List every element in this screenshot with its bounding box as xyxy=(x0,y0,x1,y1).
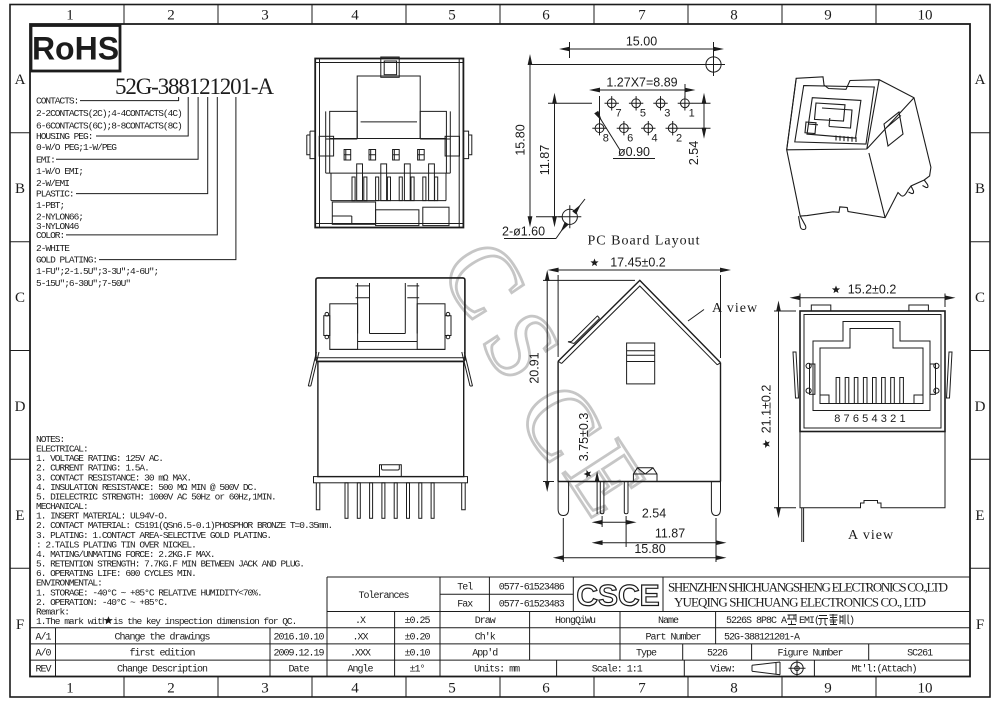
svg-text:52G-388121201-A: 52G-388121201-A xyxy=(724,632,800,643)
svg-text:ø0.90: ø0.90 xyxy=(618,145,650,159)
svg-text:App'd: App'd xyxy=(472,648,498,660)
svg-text:HongQiWu: HongQiWu xyxy=(555,615,596,627)
svg-text:A/1: A/1 xyxy=(35,632,51,644)
svg-text:52G-388121201-A: 52G-388121201-A xyxy=(115,74,274,99)
svg-text:COLOR:: COLOR: xyxy=(36,230,64,241)
svg-text:2: 2 xyxy=(676,133,682,145)
svg-text:3: 3 xyxy=(664,108,670,120)
svg-text:E: E xyxy=(975,508,984,524)
svg-text:Tolerances: Tolerances xyxy=(358,590,409,602)
svg-text:20.91: 20.91 xyxy=(528,352,542,383)
svg-text:0-W/O PEG;1-W/PEG: 0-W/O PEG;1-W/PEG xyxy=(36,142,117,153)
svg-text:15.80: 15.80 xyxy=(514,124,528,155)
svg-text:5226: 5226 xyxy=(707,649,728,660)
svg-text:5: 5 xyxy=(448,681,456,697)
svg-text:1-FU";2-1.5U";3-3U";4-6U";: 1-FU";2-1.5U";3-3U";4-6U"; xyxy=(36,266,158,277)
svg-text:3: 3 xyxy=(261,681,269,697)
svg-text:1: 1 xyxy=(689,108,695,120)
svg-text:9: 9 xyxy=(824,8,832,24)
svg-text:F: F xyxy=(16,617,24,633)
svg-text:B: B xyxy=(975,181,985,197)
svg-text:2009.12.19: 2009.12.19 xyxy=(273,649,324,660)
svg-text:8: 8 xyxy=(603,133,609,145)
svg-text:Ch'k: Ch'k xyxy=(475,631,496,643)
svg-text:7: 7 xyxy=(638,681,646,697)
svg-text:5-15U";6-30U";7-50U": 5-15U";6-30U";7-50U" xyxy=(36,278,130,289)
svg-text:Scale: 1:1: Scale: 1:1 xyxy=(592,664,643,676)
svg-text:10: 10 xyxy=(918,681,933,697)
svg-text:PC Board Layout: PC Board Layout xyxy=(588,234,701,249)
svg-text:87654321: 87654321 xyxy=(834,413,909,425)
svg-text:7: 7 xyxy=(638,8,646,24)
svg-text:Draw: Draw xyxy=(475,616,496,627)
svg-text:.X: .X xyxy=(355,616,366,627)
svg-text:SC261: SC261 xyxy=(907,649,933,660)
svg-text:1-PBT;: 1-PBT; xyxy=(36,200,64,211)
svg-text:1-W/O EMI;: 1-W/O EMI; xyxy=(36,166,83,177)
svg-text:C: C xyxy=(975,290,985,306)
svg-text:11.87: 11.87 xyxy=(655,527,685,541)
svg-text:6: 6 xyxy=(542,681,550,697)
svg-text:5226S 8P8C A: 5226S 8P8C A xyxy=(726,616,787,627)
svg-text:15.80: 15.80 xyxy=(634,542,665,556)
svg-text:6-6CONTACTS(6C);8-8CONTACTS(8C: 6-6CONTACTS(6C);8-8CONTACTS(8C) xyxy=(36,121,182,132)
svg-text:2016.10.10: 2016.10.10 xyxy=(273,633,324,644)
svg-text:is the key inspection dimensio: is the key inspection dimension for QC. xyxy=(113,616,296,627)
svg-text:5: 5 xyxy=(640,108,646,120)
svg-text:6: 6 xyxy=(542,8,550,24)
svg-text:A: A xyxy=(975,72,986,88)
svg-text:Type: Type xyxy=(636,649,657,660)
svg-text:PLASTIC:: PLASTIC: xyxy=(36,189,74,200)
svg-text:3: 3 xyxy=(261,8,269,24)
svg-text:7: 7 xyxy=(615,108,621,120)
svg-text:B: B xyxy=(15,181,25,197)
svg-text:HOUSING PEG:: HOUSING PEG: xyxy=(36,131,92,142)
svg-text:2-ø1.60: 2-ø1.60 xyxy=(502,225,545,239)
svg-text:2-WHITE: 2-WHITE xyxy=(36,243,70,254)
svg-text:21.1±0.2: 21.1±0.2 xyxy=(760,385,774,434)
svg-text:.XXX: .XXX xyxy=(350,649,371,660)
svg-text:4: 4 xyxy=(652,133,658,145)
svg-text:2: 2 xyxy=(167,8,175,24)
svg-text:YUEQING SHICHUANG ELECTRONICS: YUEQING SHICHUANG ELECTRONICS CO., LTD xyxy=(674,595,926,610)
svg-text:±0.10: ±0.10 xyxy=(404,649,430,660)
svg-text:EMI(: EMI( xyxy=(799,615,819,627)
svg-text:0577-61523486: 0577-61523486 xyxy=(499,582,565,593)
svg-text:Name: Name xyxy=(658,616,679,627)
svg-text:Change Description: Change Description xyxy=(117,664,208,676)
svg-text:1: 1 xyxy=(66,8,74,24)
svg-text:Mt'l:(Attach): Mt'l:(Attach) xyxy=(851,664,916,676)
svg-text:8: 8 xyxy=(730,8,738,24)
svg-text:±1°: ±1° xyxy=(409,664,424,676)
svg-text:REV: REV xyxy=(35,665,51,676)
svg-text:5: 5 xyxy=(448,8,456,24)
svg-text:EMI:: EMI: xyxy=(36,154,55,165)
svg-text:11.87: 11.87 xyxy=(538,145,552,175)
svg-text:2-2CONTACTS(2C);4-4CONTACTS(4C: 2-2CONTACTS(2C);4-4CONTACTS(4C) xyxy=(36,108,182,119)
svg-text:15.00: 15.00 xyxy=(626,35,657,49)
svg-text:Tel: Tel xyxy=(457,581,473,593)
svg-text:A: A xyxy=(15,72,26,88)
svg-text:CONTACTS:: CONTACTS: xyxy=(36,96,78,107)
svg-text:.XX: .XX xyxy=(352,632,368,643)
svg-text:): ) xyxy=(849,615,854,627)
svg-text:6: 6 xyxy=(627,133,633,145)
svg-text:2.54: 2.54 xyxy=(687,141,701,165)
svg-text:1: 1 xyxy=(66,681,74,697)
svg-text:CSCE: CSCE xyxy=(576,580,659,613)
svg-text:1.The mark with: 1.The mark with xyxy=(36,616,107,627)
svg-text:D: D xyxy=(975,399,986,415)
svg-text:SHENZHEN SHICHUANGSHENG ELECTR: SHENZHEN SHICHUANGSHENG ELECTRONICS CO.,… xyxy=(668,580,948,595)
svg-text:2-W/EMI: 2-W/EMI xyxy=(36,178,69,189)
svg-text:4: 4 xyxy=(351,8,359,24)
svg-text:0577-61523483: 0577-61523483 xyxy=(499,599,565,610)
svg-text:2: 2 xyxy=(167,681,175,697)
svg-text:17.45±0.2: 17.45±0.2 xyxy=(610,256,666,270)
svg-text:D: D xyxy=(15,399,26,415)
svg-text:Date: Date xyxy=(288,665,309,676)
svg-text:A view: A view xyxy=(848,528,894,543)
svg-text:A/0: A/0 xyxy=(35,648,51,660)
svg-text:RoHS: RoHS xyxy=(32,31,119,67)
svg-text:F: F xyxy=(976,617,984,633)
svg-text:8: 8 xyxy=(730,681,738,697)
svg-text:4: 4 xyxy=(351,681,359,697)
svg-text:Part Number: Part Number xyxy=(645,631,701,643)
svg-text:C: C xyxy=(15,290,25,306)
svg-text:Units: mm: Units: mm xyxy=(474,664,520,676)
svg-text:±0.20: ±0.20 xyxy=(404,632,430,643)
svg-text:first edition: first edition xyxy=(129,648,195,660)
svg-text:GOLD PLATING:: GOLD PLATING: xyxy=(36,255,97,266)
svg-text:2.54: 2.54 xyxy=(642,507,666,521)
svg-text:A view: A view xyxy=(712,301,758,316)
svg-text:3.75±0.3: 3.75±0.3 xyxy=(577,413,591,462)
svg-text:Fax: Fax xyxy=(457,599,473,610)
svg-text:View:: View: xyxy=(710,664,735,676)
svg-text:10: 10 xyxy=(918,8,933,24)
svg-text:1.27X7=8.89: 1.27X7=8.89 xyxy=(606,76,677,90)
svg-text:Change the drawings: Change the drawings xyxy=(114,632,210,644)
svg-text:9: 9 xyxy=(824,681,832,697)
svg-text:15.2±0.2: 15.2±0.2 xyxy=(848,283,897,297)
svg-text:Angle: Angle xyxy=(347,664,373,676)
svg-text:±0.25: ±0.25 xyxy=(404,616,430,627)
svg-text:E: E xyxy=(15,508,24,524)
svg-text:Figure Number: Figure Number xyxy=(777,648,843,660)
